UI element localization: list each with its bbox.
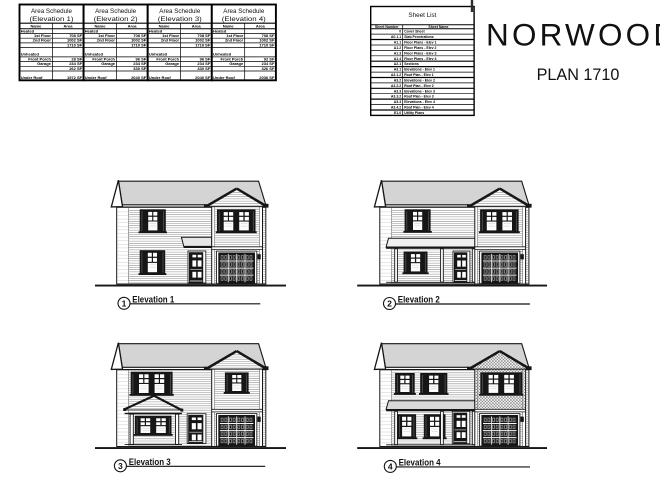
svg-text:Elevations - Elev 4: Elevations - Elev 4: [404, 100, 435, 104]
svg-text:Area: Area: [128, 24, 138, 29]
svg-text:262 SF: 262 SF: [69, 66, 82, 71]
svg-text:Roof Plan - Elev 1: Roof Plan - Elev 1: [404, 73, 434, 77]
svg-text:Floor Plans - Elev 4: Floor Plans - Elev 4: [404, 57, 436, 61]
svg-text:2036 SF: 2036 SF: [259, 75, 275, 80]
svg-text:A3.1.2: A3.1.2: [391, 73, 401, 77]
svg-text:Elevation 3: Elevation 3: [129, 457, 171, 467]
svg-text:A1.1: A1.1: [394, 41, 401, 45]
svg-text:Under Roof: Under Roof: [85, 75, 107, 80]
svg-text:(Elevation 2): (Elevation 2): [94, 16, 138, 23]
svg-text:(Elevation 1): (Elevation 1): [30, 16, 74, 23]
svg-text:Elevations - Elev 1: Elevations - Elev 1: [404, 68, 435, 72]
svg-text:3: 3: [118, 461, 123, 471]
svg-text:Area Schedule: Area Schedule: [95, 8, 136, 15]
svg-text:Heated: Heated: [149, 28, 163, 33]
svg-text:A2.1: A2.1: [394, 62, 401, 66]
svg-text:PLAN 1710: PLAN 1710: [537, 66, 620, 84]
svg-text:Elevation 2: Elevation 2: [398, 295, 440, 305]
svg-text:2: 2: [387, 299, 392, 309]
svg-text:Sections: Sections: [404, 62, 419, 66]
svg-text:4: 4: [388, 462, 393, 472]
svg-text:2nd Floor: 2nd Floor: [225, 38, 244, 43]
svg-text:Cover Sheet: Cover Sheet: [404, 30, 425, 34]
svg-text:Slab Penetrations: Slab Penetrations: [404, 35, 434, 39]
svg-text:2040 SF: 2040 SF: [195, 75, 211, 80]
svg-text:Utility Plans: Utility Plans: [404, 111, 424, 115]
svg-text:2040 SF: 2040 SF: [131, 75, 147, 80]
svg-text:Heated: Heated: [21, 28, 35, 33]
svg-text:Heated: Heated: [213, 28, 227, 33]
svg-text:1710 SF: 1710 SF: [67, 42, 83, 47]
svg-text:A3.4: A3.4: [394, 100, 401, 104]
svg-text:Roof Plan - Elev 2: Roof Plan - Elev 2: [404, 84, 434, 88]
svg-text:Area Schedule: Area Schedule: [159, 8, 200, 15]
svg-text:2nd Floor: 2nd Floor: [33, 38, 52, 43]
svg-text:Garage: Garage: [229, 61, 244, 66]
svg-text:Garage: Garage: [101, 61, 116, 66]
svg-text:A3.2.2: A3.2.2: [391, 84, 401, 88]
svg-text:Area: Area: [64, 24, 74, 29]
svg-text:Floor Plans - Elev 3: Floor Plans - Elev 3: [404, 51, 436, 55]
svg-text:A3.1: A3.1: [394, 68, 401, 72]
svg-text:A3.4.2: A3.4.2: [391, 106, 401, 110]
svg-text:1710 SF: 1710 SF: [259, 42, 275, 47]
svg-text:330 SF: 330 SF: [133, 66, 146, 71]
svg-text:(Elevation 4): (Elevation 4): [222, 16, 266, 23]
svg-text:Garage: Garage: [165, 61, 180, 66]
svg-text:Floor Plans - Elev 2: Floor Plans - Elev 2: [404, 46, 436, 50]
svg-text:Under Roof: Under Roof: [149, 75, 171, 80]
svg-text:1710 SF: 1710 SF: [195, 42, 211, 47]
svg-text:A1.2: A1.2: [394, 46, 401, 50]
svg-text:Area Schedule: Area Schedule: [31, 8, 72, 15]
svg-text:1972 SF: 1972 SF: [67, 75, 83, 80]
svg-text:Under Roof: Under Roof: [21, 75, 43, 80]
svg-text:2nd Floor: 2nd Floor: [161, 38, 180, 43]
svg-text:A3.3: A3.3: [394, 89, 401, 93]
svg-text:Elevation 4: Elevation 4: [399, 457, 442, 467]
svg-text:0: 0: [399, 30, 401, 34]
svg-text:Garage: Garage: [37, 61, 52, 66]
svg-text:Roof Plan - Elev 4: Roof Plan - Elev 4: [404, 106, 434, 110]
svg-text:1: 1: [122, 299, 127, 309]
svg-text:A0.1.1: A0.1.1: [391, 35, 401, 39]
svg-text:A1.4: A1.4: [394, 57, 401, 61]
svg-text:Floor Plans - Elev 1: Floor Plans - Elev 1: [404, 41, 436, 45]
svg-text:NORWOOD: NORWOOD: [486, 16, 660, 52]
svg-text:Heated: Heated: [85, 28, 99, 33]
svg-text:(Elevation 3): (Elevation 3): [158, 16, 202, 23]
svg-text:A3.2: A3.2: [394, 79, 401, 83]
svg-text:E1.0: E1.0: [394, 111, 401, 115]
svg-text:330 SF: 330 SF: [197, 66, 210, 71]
svg-text:Sheet List: Sheet List: [408, 12, 436, 19]
svg-text:Elevation 1: Elevation 1: [132, 294, 174, 304]
svg-text:Under Roof: Under Roof: [213, 75, 235, 80]
svg-text:Area: Area: [256, 24, 266, 29]
svg-text:1710 SF: 1710 SF: [131, 42, 147, 47]
svg-text:2nd Floor: 2nd Floor: [97, 38, 116, 43]
svg-text:A1.3: A1.3: [394, 51, 401, 55]
svg-text:Elevations - Elev 2: Elevations - Elev 2: [404, 79, 435, 83]
svg-text:Area Schedule: Area Schedule: [223, 8, 264, 15]
svg-text:Elevations - Elev 3: Elevations - Elev 3: [404, 89, 435, 93]
svg-text:A3.3.2: A3.3.2: [391, 95, 401, 99]
svg-text:Area: Area: [192, 24, 202, 29]
svg-text:326 SF: 326 SF: [261, 66, 274, 71]
svg-text:Roof Plan - Elev 3: Roof Plan - Elev 3: [404, 95, 434, 99]
